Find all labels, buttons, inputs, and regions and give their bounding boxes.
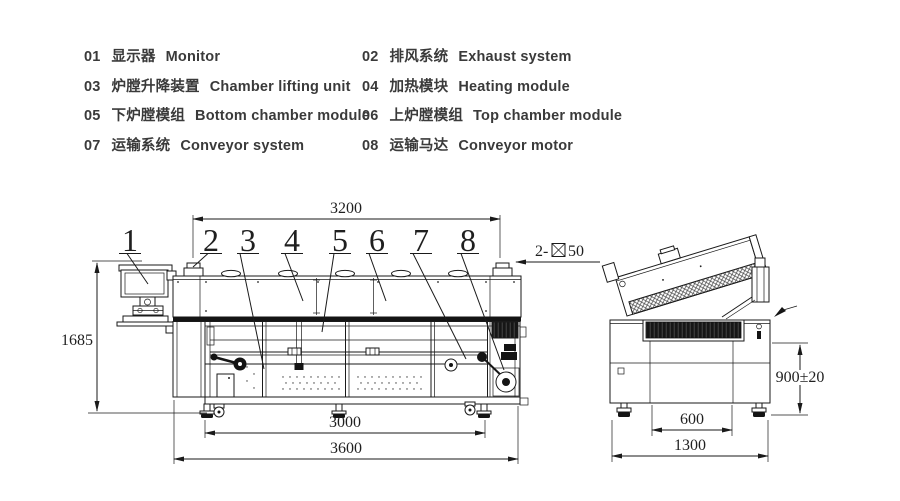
lower-frame (205, 322, 528, 406)
keyboard-tray (123, 316, 168, 322)
legend-number: 07 (84, 138, 101, 154)
legend-item-conveyor-motor: 08 运输马达 Conveyor motor (362, 134, 573, 155)
legend-label-cn: 下炉膛模组 (112, 104, 186, 125)
hinge-pointer-arrow (774, 307, 786, 317)
bottom-heating-module (646, 322, 741, 338)
upper-chamber (173, 276, 521, 322)
dim-overall-length: 3600 (330, 440, 362, 457)
tray-rail (117, 322, 175, 326)
side-top-chamber-open (602, 220, 767, 318)
electrical-box (217, 374, 234, 397)
vent-grille (492, 322, 518, 338)
legend-label-cn: 上炉膛模组 (390, 104, 464, 125)
dim-rail-height: 900±20 (776, 369, 825, 386)
callout-2: 2 (203, 222, 219, 258)
annotation-prefix: 2- (535, 243, 548, 260)
legend-label-en: Heating module (458, 79, 570, 95)
legend-item-conveyor-system: 07 运输系统 Conveyor system (84, 134, 304, 155)
exhaust-port-annotation: 2- 50 (516, 243, 600, 262)
legend-item-exhaust-system: 02 排风系统 Exhaust system (362, 45, 572, 66)
callout-4: 4 (284, 222, 300, 258)
legend-label-cn: 排风系统 (390, 45, 449, 66)
legend-number: 05 (84, 108, 101, 124)
callout-5: 5 (332, 222, 348, 258)
legend-number: 02 (362, 49, 379, 65)
left-end-cabinet (173, 322, 205, 398)
legend-label-cn: 加热模块 (390, 75, 449, 96)
legend-item-chamber-lifting-unit: 03 炉膛升降装置 Chamber lifting unit (84, 75, 351, 96)
callout-6: 6 (369, 222, 385, 258)
dim-overall-width: 1300 (674, 437, 706, 454)
callout-3: 3 (240, 222, 256, 258)
legend-item-top-chamber-module: 06 上炉膛模组 Top chamber module (362, 104, 622, 125)
side-view: 900±20 600 1300 (602, 220, 829, 462)
dim-top-width: 3200 (330, 200, 362, 217)
legend-label-en: Top chamber module (473, 108, 622, 124)
side-handle (520, 327, 526, 337)
legend-label-en: Conveyor motor (458, 138, 573, 154)
legend-number: 01 (84, 49, 101, 65)
dim-height: 1685 (61, 332, 93, 349)
dim-inner-width: 600 (680, 411, 704, 428)
annotation-suffix: 50 (568, 243, 584, 260)
legend-label-en: Exhaust system (458, 49, 571, 65)
exhaust-stack-right (493, 263, 512, 276)
legend-number: 03 (84, 79, 101, 95)
callout-1: 1 (122, 222, 138, 258)
monitor-assembly (117, 265, 176, 333)
side-base-body (610, 320, 770, 403)
legend-label-cn: 运输系统 (112, 134, 171, 155)
callout-8: 8 (460, 222, 476, 258)
chamber-latch-handle (602, 263, 618, 283)
legend-item-heating-module: 04 加热模块 Heating module (362, 75, 570, 96)
legend-number: 08 (362, 138, 379, 154)
legend-item-monitor: 01 显示器 Monitor (84, 45, 220, 66)
front-view: 3200 1685 3000 3600 2- (61, 200, 600, 464)
legend-number: 04 (362, 79, 379, 95)
legend-number: 06 (362, 108, 379, 124)
callout-7: 7 (413, 222, 429, 258)
monitor (121, 270, 168, 297)
conveyor-rail-band (173, 317, 521, 322)
legend-label-cn: 炉膛升降装置 (112, 75, 200, 96)
legend-item-bottom-chamber-module: 05 下炉膛模组 Bottom chamber module (84, 104, 370, 125)
legend-label-cn: 显示器 (112, 45, 156, 66)
dim-feet-span: 3000 (329, 414, 361, 431)
machine-drawing-page: 3200 1685 3000 3600 2- (0, 0, 900, 501)
legend-label-cn: 运输马达 (390, 134, 449, 155)
right-outrigger (520, 398, 528, 405)
exhaust-stack-left (184, 263, 203, 276)
legend-label-en: Monitor (166, 49, 221, 65)
legend-label-en: Bottom chamber module (195, 108, 370, 124)
legend-label-en: Conveyor system (180, 138, 304, 154)
legend-label-en: Chamber lifting unit (210, 79, 351, 95)
toggle-switch (757, 331, 761, 339)
